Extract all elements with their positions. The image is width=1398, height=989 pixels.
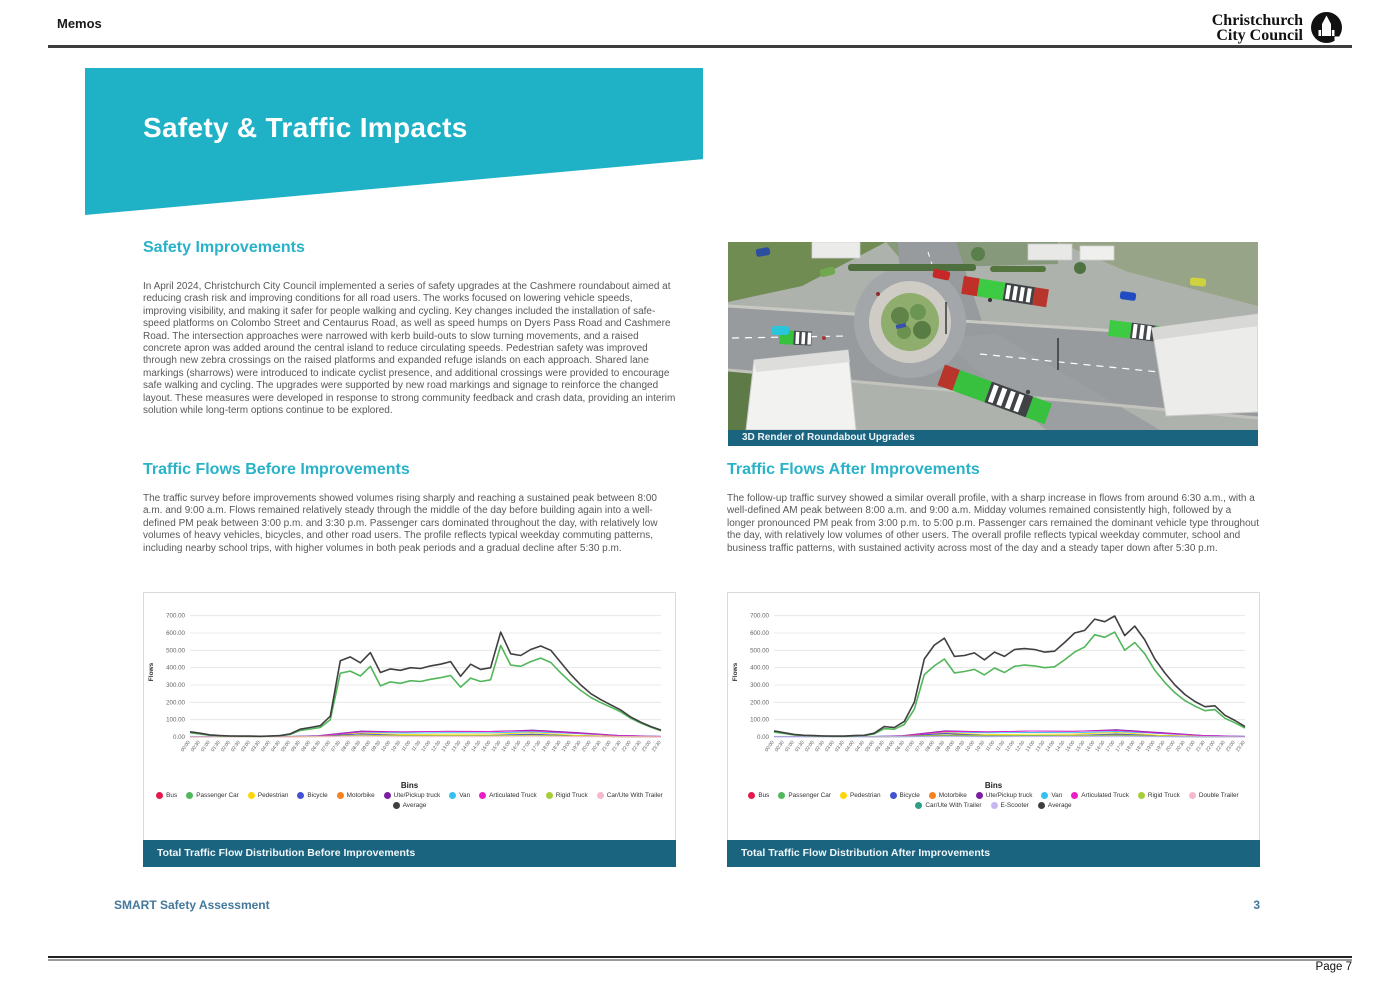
legend-item: Average <box>1038 802 1072 809</box>
svg-text:05:30: 05:30 <box>874 739 886 753</box>
council-logo: Christchurch City Council <box>1212 11 1343 44</box>
svg-text:03:30: 03:30 <box>250 739 262 753</box>
legend-dot-icon <box>915 802 922 809</box>
svg-text:200.00: 200.00 <box>166 699 185 706</box>
memo-document-page: Memos Christchurch City Council Safety &… <box>0 0 1398 989</box>
svg-text:12:30: 12:30 <box>1014 739 1026 753</box>
svg-text:04:30: 04:30 <box>854 739 866 753</box>
svg-text:Flows: Flows <box>732 662 739 681</box>
legend-item: Rigid Truck <box>1138 792 1180 799</box>
legend-item: Car/Ute With Trailer <box>915 802 981 809</box>
svg-text:06:00: 06:00 <box>300 739 312 753</box>
chart-legend: BinsBusPassenger CarPedestrianBicycleMot… <box>144 781 675 809</box>
svg-text:03:30: 03:30 <box>834 739 846 753</box>
svg-text:12:30: 12:30 <box>430 739 442 753</box>
svg-text:05:30: 05:30 <box>290 739 302 753</box>
svg-text:13:00: 13:00 <box>1024 739 1036 753</box>
svg-text:12:00: 12:00 <box>420 739 432 753</box>
svg-text:17:30: 17:30 <box>1115 739 1127 753</box>
svg-text:10:30: 10:30 <box>390 739 402 753</box>
svg-text:19:00: 19:00 <box>1145 739 1157 753</box>
svg-text:18:00: 18:00 <box>541 739 553 753</box>
svg-text:200.00: 200.00 <box>750 699 769 706</box>
legend-item: Bus <box>156 792 177 799</box>
legend-dot-icon <box>1189 792 1196 799</box>
svg-text:11:00: 11:00 <box>401 739 413 752</box>
legend-item: Pedestrian <box>248 792 289 799</box>
legend-item: Articulated Truck <box>1071 792 1129 799</box>
svg-text:300.00: 300.00 <box>166 682 185 689</box>
svg-text:08:00: 08:00 <box>340 739 352 753</box>
legend-dot-icon <box>778 792 785 799</box>
svg-text:18:00: 18:00 <box>1125 739 1137 753</box>
svg-text:12:00: 12:00 <box>1004 739 1016 753</box>
svg-text:22:00: 22:00 <box>621 739 633 753</box>
council-crest-icon <box>1310 11 1343 44</box>
legend-item: Motorbike <box>929 792 967 799</box>
legend-item: Bus <box>748 792 769 799</box>
chart-legend: BinsBusPassenger CarPedestrianBicycleMot… <box>728 781 1259 809</box>
roundabout-render-illustration <box>728 242 1258 430</box>
footer-document-title: SMART Safety Assessment <box>114 898 270 912</box>
legend-dot-icon <box>156 792 163 799</box>
svg-text:05:00: 05:00 <box>280 739 292 753</box>
svg-text:07:30: 07:30 <box>330 739 342 753</box>
svg-text:04:30: 04:30 <box>270 739 282 753</box>
svg-text:06:00: 06:00 <box>884 739 896 753</box>
legend-dot-icon <box>840 792 847 799</box>
legend-item: Van <box>1041 792 1062 799</box>
legend-dot-icon <box>890 792 897 799</box>
svg-text:15:30: 15:30 <box>1075 739 1087 753</box>
legend-dot-icon <box>991 802 998 809</box>
document-header-title: Memos <box>57 16 102 31</box>
svg-text:23:00: 23:00 <box>1225 739 1237 753</box>
svg-text:00:00: 00:00 <box>764 739 776 753</box>
svg-text:13:30: 13:30 <box>1034 739 1046 753</box>
legend-dot-icon <box>393 802 400 809</box>
safety-improvements-heading: Safety Improvements <box>143 239 305 257</box>
footer-divider <box>48 956 1352 958</box>
legend-dot-icon <box>1041 792 1048 799</box>
svg-text:19:30: 19:30 <box>571 739 583 753</box>
svg-text:17:00: 17:00 <box>521 739 533 753</box>
svg-text:23:30: 23:30 <box>1235 739 1247 753</box>
legend-dot-icon <box>1071 792 1078 799</box>
svg-text:400.00: 400.00 <box>166 665 185 672</box>
svg-text:00:30: 00:30 <box>190 739 202 753</box>
svg-text:08:30: 08:30 <box>350 739 362 753</box>
legend-dot-icon <box>479 792 486 799</box>
legend-item: Motorbike <box>337 792 375 799</box>
svg-text:02:00: 02:00 <box>220 739 232 753</box>
section-banner: Safety & Traffic Impacts <box>85 68 703 215</box>
svg-text:02:00: 02:00 <box>804 739 816 753</box>
svg-text:03:00: 03:00 <box>824 739 836 753</box>
svg-text:09:00: 09:00 <box>360 739 372 753</box>
svg-text:0.00: 0.00 <box>757 734 770 741</box>
traffic-after-heading: Traffic Flows After Improvements <box>727 461 980 479</box>
legend-dot-icon <box>929 792 936 799</box>
svg-text:16:30: 16:30 <box>511 739 523 753</box>
svg-text:01:00: 01:00 <box>784 739 796 753</box>
svg-text:23:30: 23:30 <box>651 739 663 753</box>
logo-line2: City Council <box>1212 28 1303 43</box>
svg-text:300.00: 300.00 <box>750 682 769 689</box>
legend-item: Van <box>449 792 470 799</box>
svg-text:08:30: 08:30 <box>934 739 946 753</box>
svg-text:16:00: 16:00 <box>1085 739 1097 753</box>
svg-text:100.00: 100.00 <box>166 717 185 724</box>
legend-title: Bins <box>144 781 675 790</box>
svg-text:Flows: Flows <box>148 662 155 681</box>
legend-item: Pedestrian <box>840 792 881 799</box>
svg-text:13:30: 13:30 <box>450 739 462 753</box>
svg-text:14:00: 14:00 <box>1044 739 1056 753</box>
svg-text:22:30: 22:30 <box>631 739 643 753</box>
svg-text:17:00: 17:00 <box>1105 739 1117 753</box>
svg-text:22:00: 22:00 <box>1205 739 1217 753</box>
svg-text:00:00: 00:00 <box>180 739 192 753</box>
svg-text:09:30: 09:30 <box>370 739 382 753</box>
legend-dot-icon <box>186 792 193 799</box>
svg-text:02:30: 02:30 <box>230 739 242 753</box>
svg-text:700.00: 700.00 <box>750 613 769 620</box>
logo-line1: Christchurch <box>1212 13 1303 28</box>
legend-dot-icon <box>297 792 304 799</box>
svg-text:06:30: 06:30 <box>310 739 322 753</box>
svg-text:01:30: 01:30 <box>794 739 806 753</box>
banner-title: Safety & Traffic Impacts <box>143 112 468 144</box>
svg-text:01:30: 01:30 <box>210 739 222 753</box>
svg-text:20:00: 20:00 <box>581 739 593 753</box>
svg-text:09:30: 09:30 <box>954 739 966 753</box>
svg-text:20:00: 20:00 <box>1165 739 1177 753</box>
svg-text:600.00: 600.00 <box>166 630 185 637</box>
legend-item: Ute/Pickup truck <box>384 792 441 799</box>
figure-caption: 3D Render of Roundabout Upgrades <box>728 430 1258 446</box>
svg-text:16:30: 16:30 <box>1095 739 1107 753</box>
traffic-flow-chart-before: 0.00100.00200.00300.00400.00500.00600.00… <box>143 592 676 841</box>
svg-text:10:00: 10:00 <box>380 739 392 753</box>
svg-text:11:00: 11:00 <box>985 739 997 752</box>
legend-dot-icon <box>748 792 755 799</box>
legend-item: Passenger Car <box>778 792 831 799</box>
header-divider <box>48 45 1352 48</box>
svg-text:10:30: 10:30 <box>974 739 986 753</box>
svg-text:04:00: 04:00 <box>844 739 856 753</box>
legend-dot-icon <box>597 792 604 799</box>
svg-text:15:30: 15:30 <box>491 739 503 753</box>
svg-text:15:00: 15:00 <box>480 739 492 753</box>
svg-text:23:00: 23:00 <box>641 739 653 753</box>
svg-text:14:00: 14:00 <box>460 739 472 753</box>
svg-text:14:30: 14:30 <box>470 739 482 753</box>
svg-text:05:00: 05:00 <box>864 739 876 753</box>
svg-text:06:30: 06:30 <box>894 739 906 753</box>
svg-text:19:00: 19:00 <box>561 739 573 753</box>
legend-dot-icon <box>248 792 255 799</box>
svg-text:100.00: 100.00 <box>750 717 769 724</box>
svg-text:02:30: 02:30 <box>814 739 826 753</box>
svg-text:400.00: 400.00 <box>750 665 769 672</box>
svg-text:04:00: 04:00 <box>260 739 272 753</box>
chart-caption-before: Total Traffic Flow Distribution Before I… <box>143 840 676 867</box>
svg-text:08:00: 08:00 <box>924 739 936 753</box>
legend-item: Passenger Car <box>186 792 239 799</box>
safety-improvements-paragraph: In April 2024, Christchurch City Council… <box>143 281 678 417</box>
legend-item: Ute/Pickup truck <box>976 792 1033 799</box>
svg-text:19:30: 19:30 <box>1155 739 1167 753</box>
legend-dot-icon <box>1138 792 1145 799</box>
legend-dot-icon <box>384 792 391 799</box>
svg-text:10:00: 10:00 <box>964 739 976 753</box>
traffic-flow-chart-svg: 0.00100.00200.00300.00400.00500.00600.00… <box>144 593 673 783</box>
svg-text:03:00: 03:00 <box>240 739 252 753</box>
legend-item: Rigid Truck <box>546 792 588 799</box>
print-page-label: Page 7 <box>1316 961 1352 973</box>
svg-text:700.00: 700.00 <box>166 613 185 620</box>
legend-dot-icon <box>546 792 553 799</box>
svg-text:500.00: 500.00 <box>166 647 185 654</box>
traffic-flow-chart-after: 0.00100.00200.00300.00400.00500.00600.00… <box>727 592 1260 841</box>
svg-text:20:30: 20:30 <box>591 739 603 753</box>
legend-item: Bicycle <box>890 792 920 799</box>
svg-text:09:00: 09:00 <box>944 739 956 753</box>
traffic-flow-chart-svg: 0.00100.00200.00300.00400.00500.00600.00… <box>728 593 1257 783</box>
council-logo-text: Christchurch City Council <box>1212 13 1303 43</box>
svg-text:22:30: 22:30 <box>1215 739 1227 753</box>
svg-text:07:00: 07:00 <box>904 739 916 753</box>
svg-text:21:00: 21:00 <box>1185 739 1197 753</box>
traffic-before-heading: Traffic Flows Before Improvements <box>143 461 410 479</box>
svg-text:14:30: 14:30 <box>1054 739 1066 753</box>
svg-text:07:30: 07:30 <box>914 739 926 753</box>
svg-text:17:30: 17:30 <box>531 739 543 753</box>
legend-item: Double Trailer <box>1189 792 1239 799</box>
svg-text:21:30: 21:30 <box>611 739 623 753</box>
legend-item: Car/Ute With Trailer <box>597 792 663 799</box>
legend-dot-icon <box>976 792 983 799</box>
svg-text:18:30: 18:30 <box>551 739 563 753</box>
chart-caption-after: Total Traffic Flow Distribution After Im… <box>727 840 1260 867</box>
svg-text:01:00: 01:00 <box>200 739 212 753</box>
svg-text:600.00: 600.00 <box>750 630 769 637</box>
legend-item: E-Scooter <box>991 802 1029 809</box>
svg-text:21:00: 21:00 <box>601 739 613 753</box>
svg-text:20:30: 20:30 <box>1175 739 1187 753</box>
roundabout-render-figure: 3D Render of Roundabout Upgrades <box>728 242 1258 446</box>
svg-text:13:00: 13:00 <box>440 739 452 753</box>
legend-dot-icon <box>449 792 456 799</box>
traffic-before-paragraph: The traffic survey before improvements s… <box>143 493 678 555</box>
legend-item: Bicycle <box>297 792 327 799</box>
svg-text:0.00: 0.00 <box>173 734 186 741</box>
svg-text:15:00: 15:00 <box>1064 739 1076 753</box>
svg-text:18:30: 18:30 <box>1135 739 1147 753</box>
legend-item: Articulated Truck <box>479 792 537 799</box>
legend-item: Average <box>393 802 427 809</box>
legend-dot-icon <box>1038 802 1045 809</box>
svg-text:16:00: 16:00 <box>501 739 513 753</box>
svg-text:500.00: 500.00 <box>750 647 769 654</box>
svg-text:21:30: 21:30 <box>1195 739 1207 753</box>
svg-text:00:30: 00:30 <box>774 739 786 753</box>
svg-text:07:00: 07:00 <box>320 739 332 753</box>
legend-dot-icon <box>337 792 344 799</box>
legend-title: Bins <box>728 781 1259 790</box>
footer-page-number: 3 <box>1253 898 1260 912</box>
traffic-after-paragraph: The follow-up traffic survey showed a si… <box>727 493 1260 555</box>
